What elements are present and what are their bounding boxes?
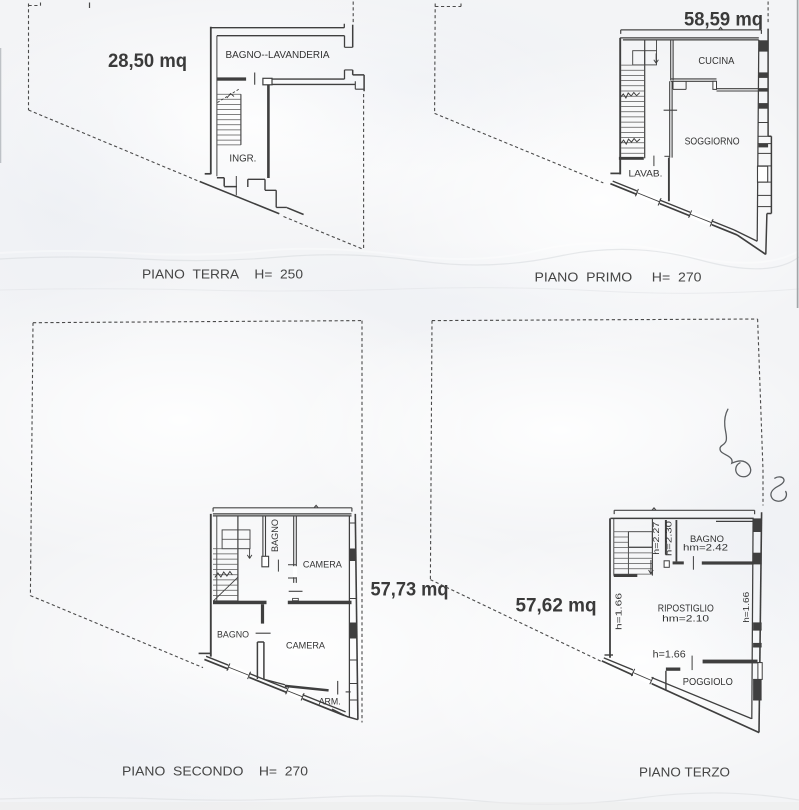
svg-text:CAMERA: CAMERA <box>286 640 326 651</box>
svg-text:58,59 mq: 58,59 mq <box>684 10 763 31</box>
svg-text:POGGIOLO: POGGIOLO <box>683 677 733 688</box>
svg-text:PIANO PRIMO H= 270: PIANO PRIMO H= 270 <box>535 270 702 285</box>
svg-text:CUCINA: CUCINA <box>698 56 734 67</box>
svg-text:BAGNO: BAGNO <box>270 519 281 552</box>
svg-text:BAGNO: BAGNO <box>217 629 249 640</box>
svg-text:57,62 mq: 57,62 mq <box>516 596 597 617</box>
svg-text:PIANO TERRA H= 250: PIANO TERRA H= 250 <box>142 267 303 282</box>
svg-text:hm=2.10: hm=2.10 <box>662 614 709 625</box>
svg-text:hm=2.42: hm=2.42 <box>683 542 728 552</box>
svg-text:h=1.66: h=1.66 <box>614 593 624 630</box>
svg-text:28,50 mq: 28,50 mq <box>108 51 187 72</box>
svg-text:CAMERA: CAMERA <box>303 559 343 570</box>
svg-text:h=2.30: h=2.30 <box>663 521 673 556</box>
svg-text:h=1.66: h=1.66 <box>741 592 751 623</box>
svg-text:BAGNO--LAVANDERIA: BAGNO--LAVANDERIA <box>226 50 330 61</box>
svg-text:LAVAB.: LAVAB. <box>629 168 663 178</box>
svg-text:INGR.: INGR. <box>229 154 256 165</box>
svg-text:PIANO SECONDO H= 270: PIANO SECONDO H= 270 <box>122 764 308 779</box>
svg-text:h=1.66: h=1.66 <box>653 650 687 661</box>
svg-text:ARM.: ARM. <box>319 697 341 707</box>
svg-text:h=2.27: h=2.27 <box>651 521 661 554</box>
svg-text:PIANO TERZO: PIANO TERZO <box>639 765 730 780</box>
svg-text:SOGGIORNO: SOGGIORNO <box>685 137 740 148</box>
